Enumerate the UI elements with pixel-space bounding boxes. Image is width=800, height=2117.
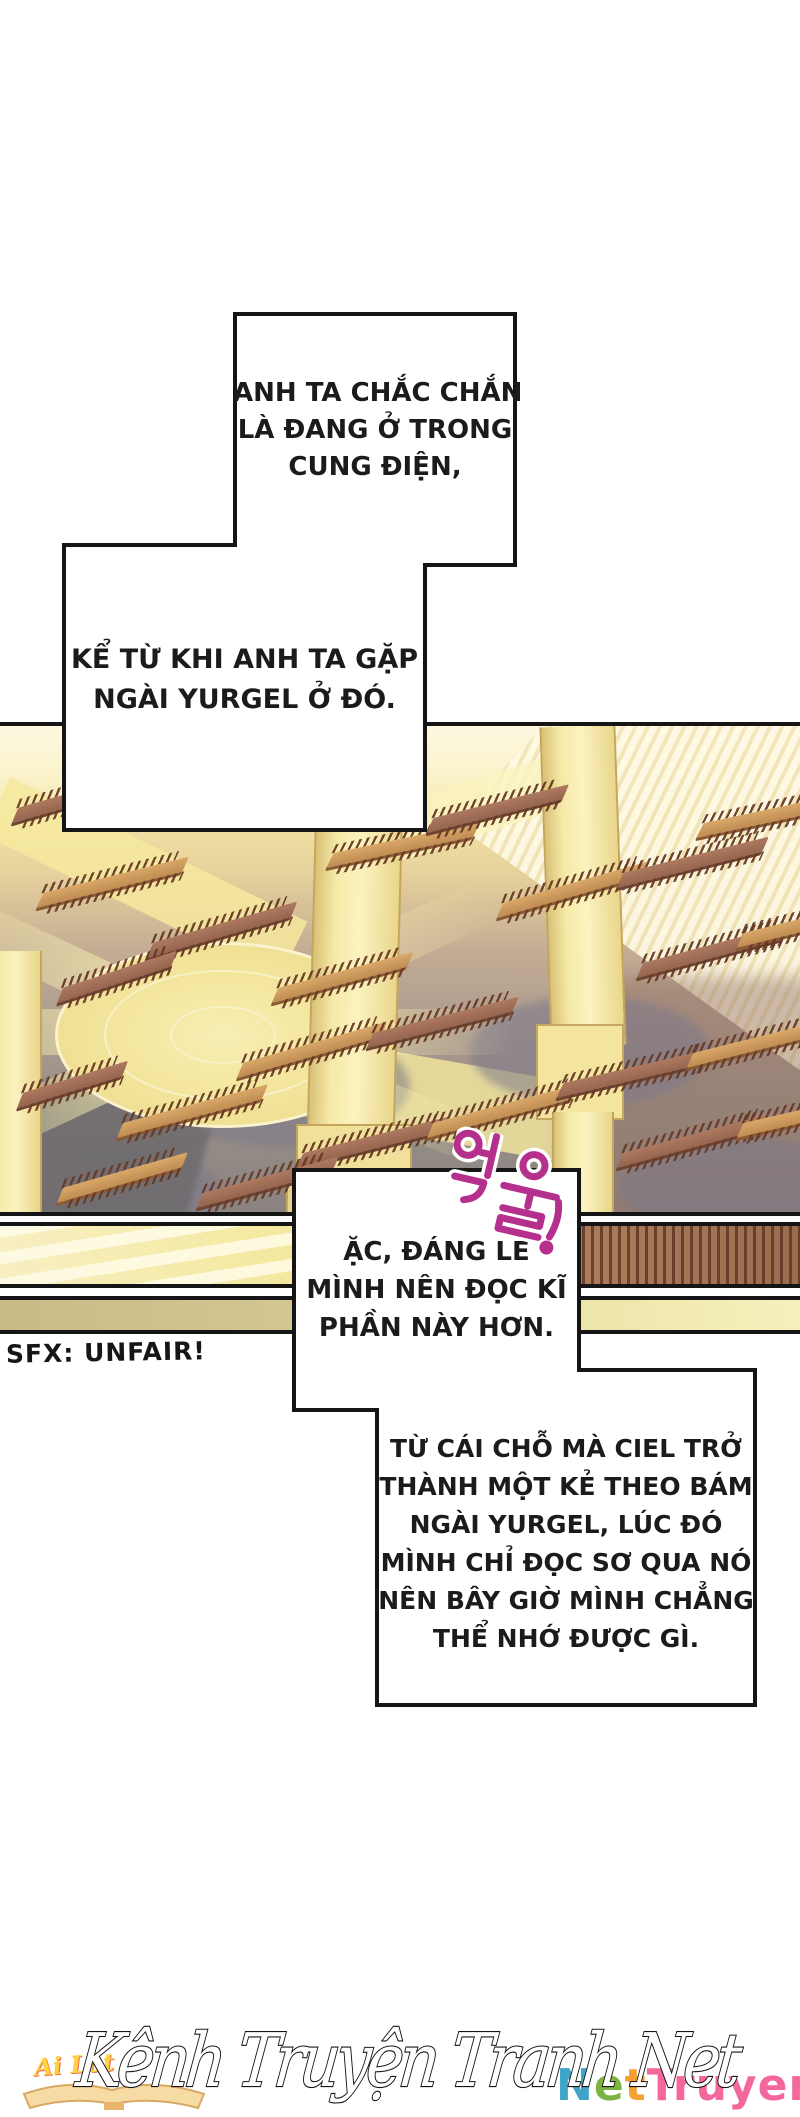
bubble2-border-top bbox=[62, 543, 237, 547]
bubble2-line: NGÀI YURGEL Ở ĐÓ. bbox=[62, 680, 427, 720]
bubble1-line: CUNG ĐIỆN, bbox=[233, 449, 517, 486]
bubble1-border-top bbox=[233, 312, 517, 316]
bubble1-line: LÀ ĐANG Ở TRONG bbox=[233, 412, 517, 449]
bubble4-border-top bbox=[577, 1368, 757, 1372]
bubble2-border-bottom bbox=[62, 828, 427, 832]
comic-page: ANH TA CHẮC CHẮN LÀ ĐANG Ở TRONG CUNG ĐI… bbox=[0, 0, 800, 2117]
bubble4-line: THÀNH MỘT KẺ THEO BÁM bbox=[375, 1468, 757, 1506]
script-watermark: Kênh Truyện Tranh Net bbox=[57, 2016, 757, 2112]
bubble3-line: PHẦN NÀY HƠN. bbox=[292, 1309, 581, 1347]
bubble4-line: THỂ NHỚ ĐƯỢC GÌ. bbox=[375, 1620, 757, 1658]
bubble2-text: KỂ TỪ KHI ANH TA GẶP NGÀI YURGEL Ở ĐÓ. bbox=[62, 640, 427, 720]
bubble2-line: KỂ TỪ KHI ANH TA GẶP bbox=[62, 640, 427, 680]
bubble1-line: ANH TA CHẮC CHẮN bbox=[233, 375, 517, 412]
sfx-translation: SFX: UNFAIR! bbox=[6, 1336, 206, 1368]
bubble3-border-bottom bbox=[292, 1408, 379, 1412]
bubble4-line: TỪ CÁI CHỖ MÀ CIEL TRỞ bbox=[375, 1430, 757, 1468]
bubble3-line: MÌNH NÊN ĐỌC KĨ bbox=[292, 1271, 581, 1309]
bubble4-line: NÊN BÂY GIỜ MÌNH CHẲNG bbox=[375, 1582, 757, 1620]
bubble4-line: NGÀI YURGEL, LÚC ĐÓ bbox=[375, 1506, 757, 1544]
bubble1-border-bottom bbox=[425, 563, 517, 567]
bubble1-text: ANH TA CHẮC CHẮN LÀ ĐANG Ở TRONG CUNG ĐI… bbox=[233, 375, 517, 486]
bubble4-line: MÌNH CHỈ ĐỌC SƠ QUA NÓ bbox=[375, 1544, 757, 1582]
bubble4-border-bottom bbox=[375, 1703, 757, 1707]
script-watermark-text: Kênh Truyện Tranh Net bbox=[71, 2018, 746, 2104]
bubble4-text: TỪ CÁI CHỖ MÀ CIEL TRỞ THÀNH MỘT KẺ THEO… bbox=[375, 1430, 757, 1658]
